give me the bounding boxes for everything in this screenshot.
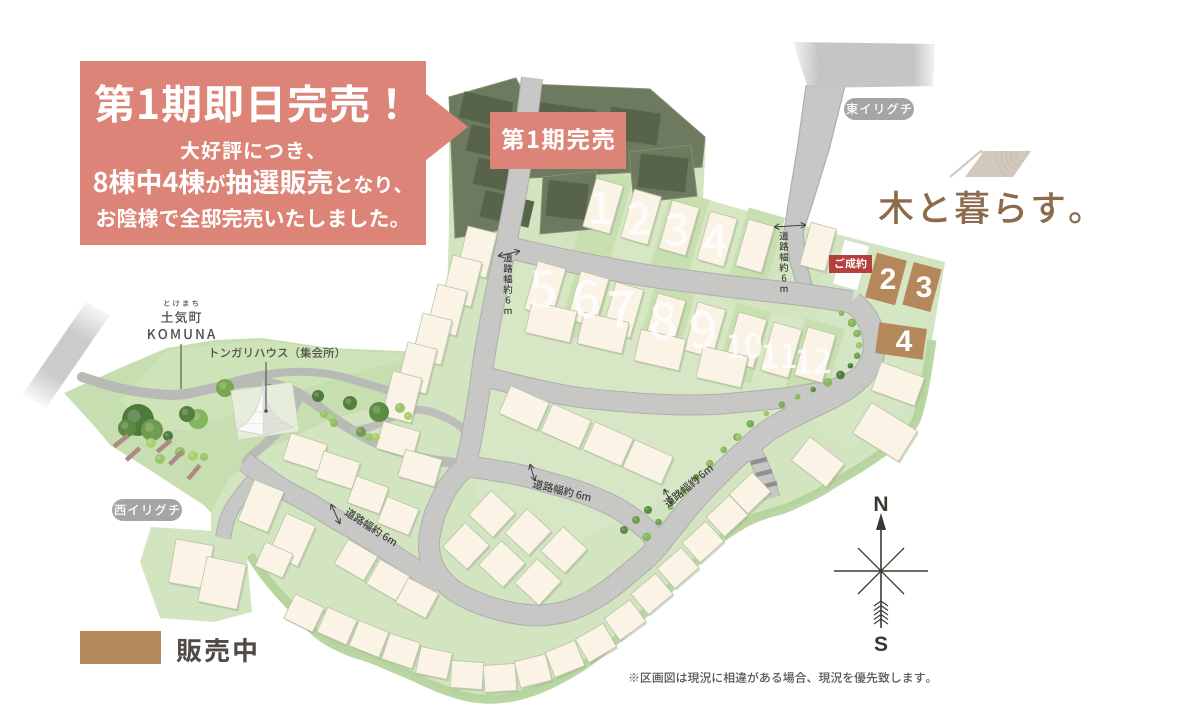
svg-text:3: 3 — [916, 271, 933, 304]
svg-text:S: S — [874, 633, 888, 656]
svg-text:4: 4 — [896, 325, 913, 358]
svg-text:2: 2 — [880, 263, 897, 296]
svg-text:N: N — [873, 493, 888, 516]
